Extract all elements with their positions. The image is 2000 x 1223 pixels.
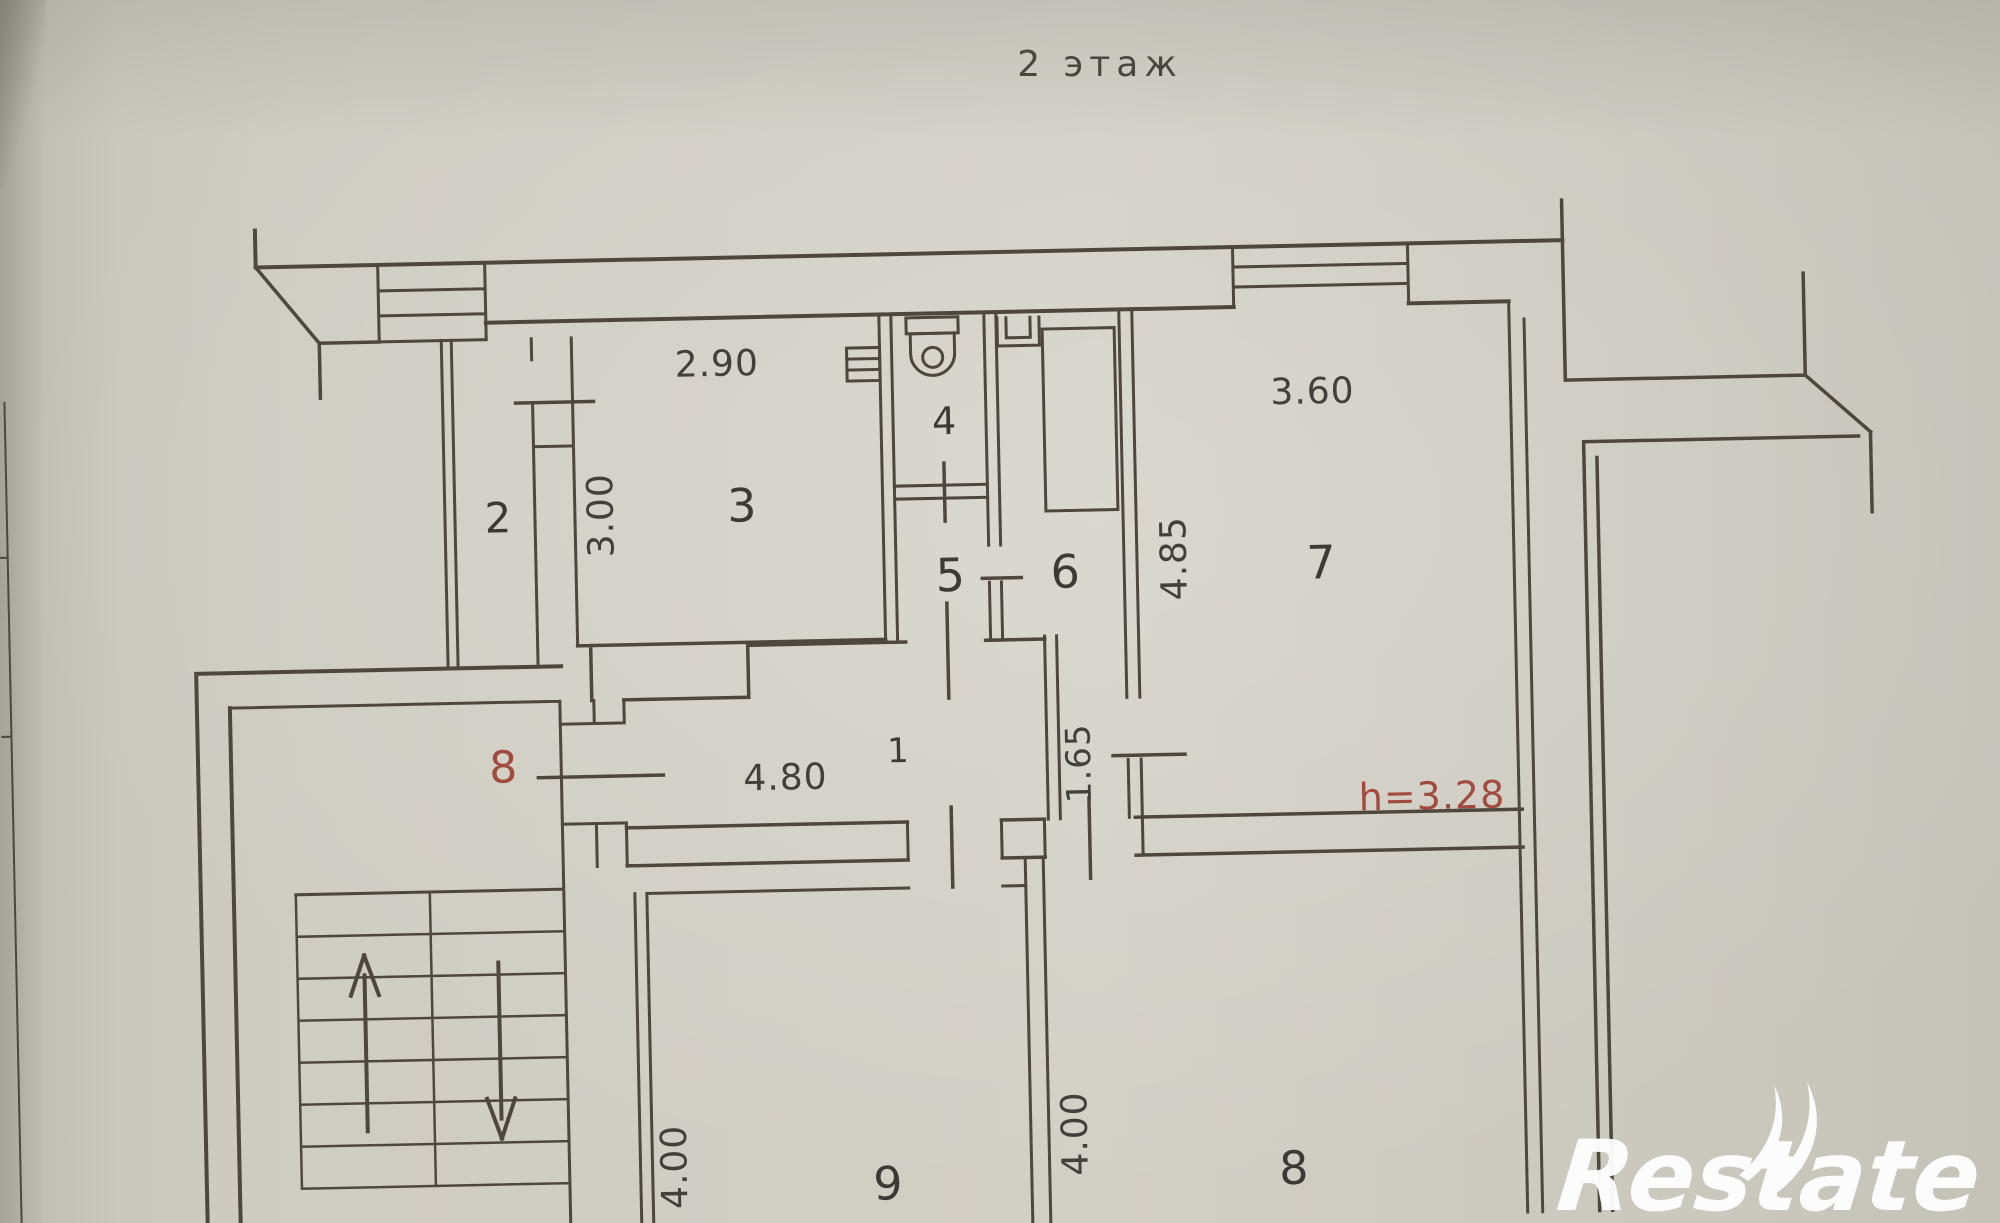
door-tick-room9: [951, 807, 953, 887]
built-in-closet: [1042, 328, 1118, 511]
room-label-9: 9: [873, 1156, 903, 1211]
room-label-7: 7: [1306, 535, 1336, 590]
dim-1-65: 1.65: [1058, 723, 1100, 804]
page-title: 2 этаж: [1017, 44, 1183, 85]
ceiling-height-note: h=3.28: [1358, 772, 1505, 819]
floor-plan-drawing: 1 2 3 4 5 6 7 8 9 2.90 3.00 3.60 4.85 4.…: [0, 0, 2000, 1223]
stove-icon: [846, 347, 880, 381]
room-label-5: 5: [935, 548, 965, 603]
dim-4-85: 4.85: [1153, 516, 1196, 601]
entrance-door-tick: [538, 775, 663, 778]
door-tick-closet: [516, 401, 594, 403]
sink-icon: [997, 317, 1040, 346]
door-tick-room7: [1113, 754, 1185, 756]
floor-plan-photo: 1 2 3 4 5 6 7 8 9 2.90 3.00 3.60 4.85 4.…: [0, 0, 2000, 1223]
room-label-3: 3: [727, 478, 757, 533]
dim-3-60: 3.60: [1270, 371, 1355, 414]
door-tick-wc: [944, 463, 945, 521]
apartment-number: 8: [489, 742, 518, 794]
dim-4-00-left: 4.00: [654, 1124, 697, 1209]
room-label-closet: 2: [484, 493, 512, 543]
stairs-up-arrow-icon: [350, 955, 382, 1132]
door-tick-room8: [1089, 798, 1091, 878]
dim-3-00: 3.00: [580, 473, 623, 558]
room-label-wc: 4: [931, 399, 956, 443]
door-tick-room5: [947, 603, 949, 698]
stairwell: [196, 664, 673, 1223]
window-icon-right: [1232, 243, 1408, 307]
watermark-logo: Restate: [1552, 1082, 1986, 1223]
dim-4-00-right: 4.00: [1054, 1091, 1097, 1176]
room-label-hallway: 1: [887, 731, 909, 771]
watermark-text: Restate: [1552, 1120, 1986, 1223]
interior-walls: [441, 301, 1531, 1223]
room-label-6: 6: [1050, 544, 1080, 599]
dim-2-90: 2.90: [674, 343, 759, 386]
room-label-8: 8: [1279, 1141, 1309, 1196]
door-tick-room6: [982, 578, 1021, 579]
stairs-down-arrow-icon: [484, 962, 516, 1139]
window-icon-left: [378, 263, 487, 342]
dim-4-80: 4.80: [743, 757, 828, 800]
toilet-icon: [906, 317, 959, 376]
balcony: [256, 265, 381, 400]
page-edge-line: [0, 403, 22, 1223]
